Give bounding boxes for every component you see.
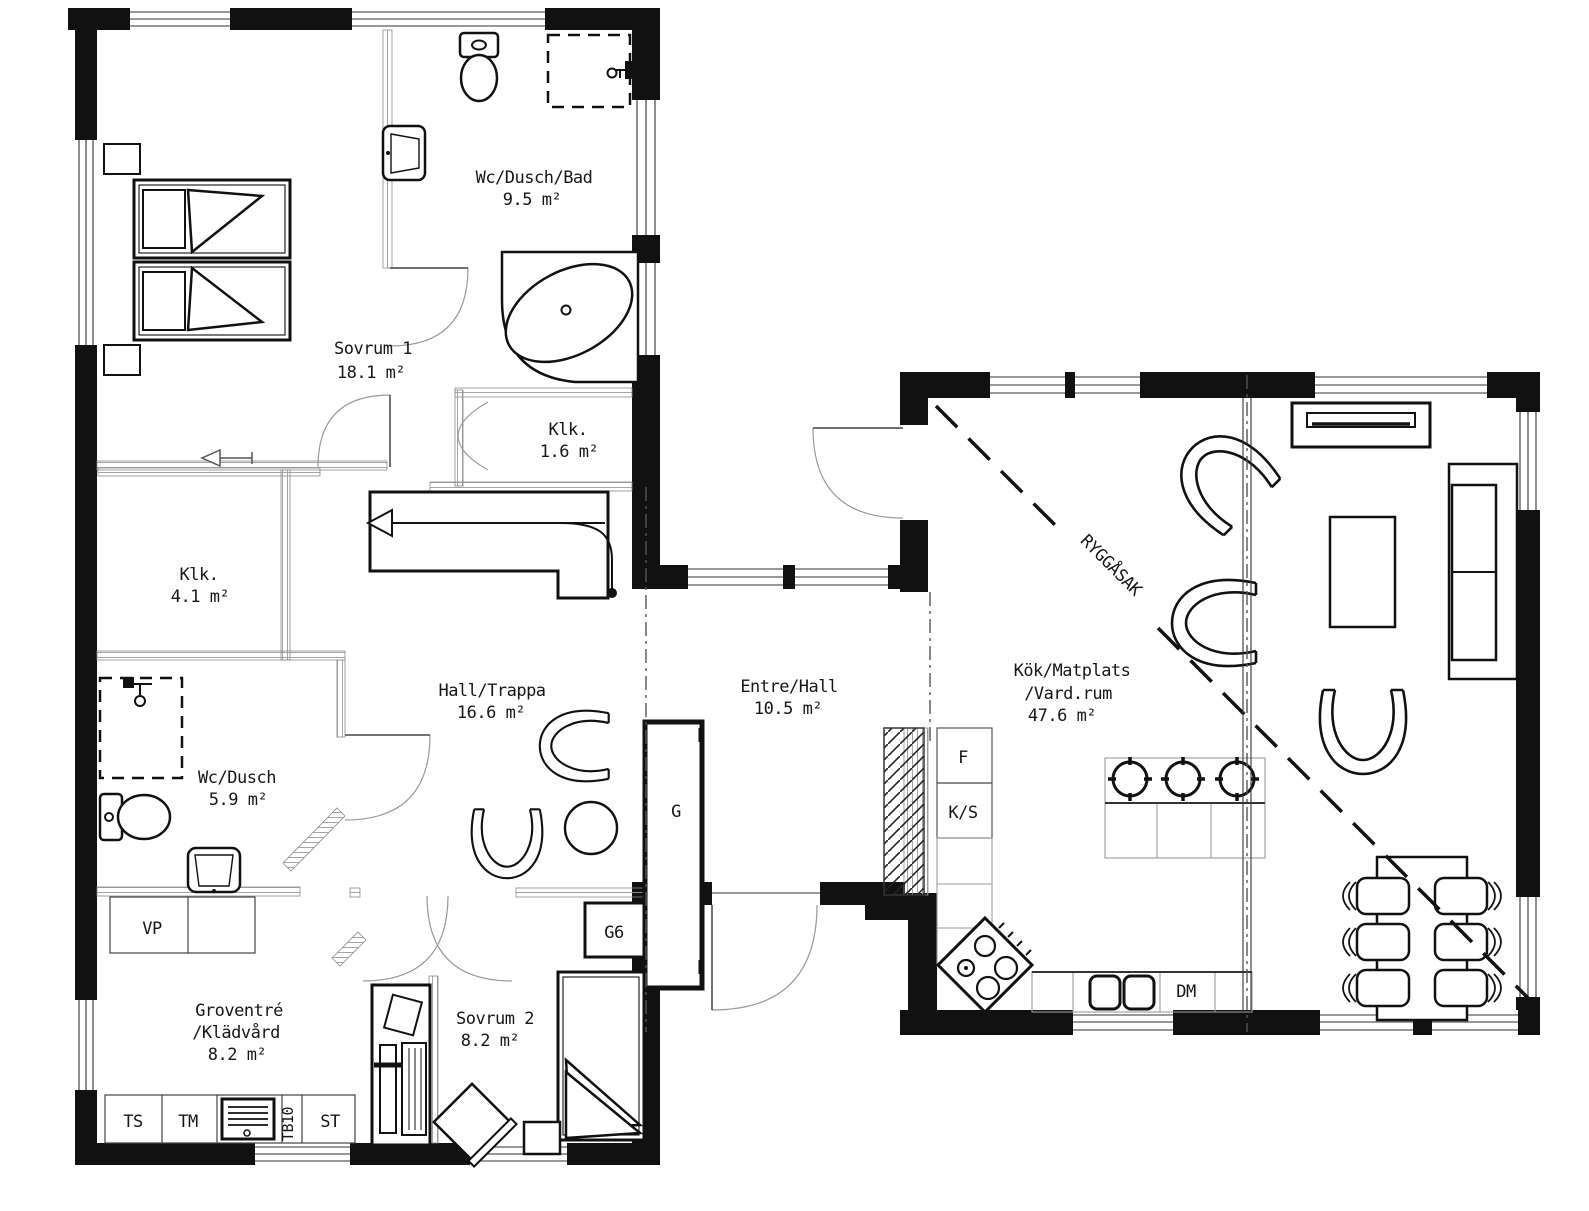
appliance-label-st: ST (320, 1112, 340, 1132)
pillow (143, 272, 185, 330)
room-label: /Klädvård (192, 1022, 280, 1043)
room-label: Wc/Dusch (198, 768, 276, 788)
appliance-label-ks: K/S (948, 803, 977, 823)
room-label: Sovrum 2 (456, 1009, 534, 1029)
appliance-label-tm: TM (178, 1112, 198, 1132)
window (1315, 372, 1487, 398)
coffee-table (1330, 517, 1395, 627)
armchair (1162, 417, 1282, 537)
dining-chair (1435, 924, 1501, 960)
dining-chair (1435, 970, 1501, 1006)
stairs (370, 492, 608, 598)
room-area: 9.5 m² (503, 190, 561, 210)
wc-dusch-fixtures (100, 678, 255, 953)
room-label: Klk. (180, 565, 219, 585)
window (688, 565, 783, 589)
window (352, 8, 545, 30)
room-label: Entre/Hall (740, 677, 837, 697)
entre-fixtures (645, 722, 924, 988)
appliance-label-f: F (958, 748, 968, 768)
window (1075, 372, 1140, 398)
room-area: 5.9 m² (209, 790, 267, 810)
dining-chair (1435, 878, 1501, 914)
appliance-label-ts: TS (123, 1112, 143, 1132)
floor-plan-svg: Wc/Dusch/Bad 9.5 m² Sovrum 1 18.1 m² Klk… (0, 0, 1589, 1211)
appliance-label-vp: VP (142, 919, 162, 939)
dining-chair (1343, 924, 1409, 960)
coat-rack (884, 728, 924, 895)
window (130, 8, 230, 30)
window (1073, 1010, 1173, 1035)
window (632, 100, 660, 235)
room-label: Hall/Trappa (438, 681, 545, 701)
dining-chair (1343, 970, 1409, 1006)
hall-stool (565, 802, 617, 854)
armchair (1320, 690, 1406, 774)
shower-mixer (124, 678, 152, 706)
window (990, 372, 1065, 398)
toilet (460, 33, 498, 101)
room-area: 18.1 m² (337, 363, 405, 383)
corner-bathtub (489, 244, 649, 382)
ridge-label: RYGGÅSAK (1076, 529, 1148, 601)
room-label: Sovrum 1 (334, 339, 412, 359)
pillow (143, 190, 185, 248)
window (1516, 412, 1540, 510)
dining-set (1343, 857, 1501, 1020)
kitchen-fixtures (937, 728, 1265, 1012)
washbasin (383, 126, 425, 180)
ridge-line (936, 406, 1056, 526)
washbasin (188, 848, 240, 893)
hall-chair (472, 809, 543, 878)
door-threshold (712, 882, 820, 905)
dryer (222, 1099, 274, 1139)
appliance-label-tb10: TB10 (279, 1106, 297, 1141)
window (1516, 897, 1540, 997)
nightstand (104, 345, 140, 375)
sovrum1-furniture (104, 144, 290, 466)
room-area: 4.1 m² (171, 587, 229, 607)
vp-cabinet (110, 897, 255, 953)
bar-stool (1108, 757, 1152, 801)
room-label: Wc/Dusch/Bad (476, 168, 593, 188)
nightstand (104, 144, 140, 174)
room-label: Kök/Matplats (1014, 661, 1131, 681)
shower-mixer (608, 62, 635, 78)
window (75, 140, 97, 345)
wardrobe-g (645, 722, 702, 988)
bar-stools (1108, 757, 1259, 801)
room-label: Klk. (549, 420, 588, 440)
room-label: Groventré (195, 1001, 283, 1021)
appliance-label-dm: DM (1176, 982, 1196, 1002)
bar-stool (1215, 757, 1259, 801)
storage-label-g: G (671, 802, 681, 822)
cleaning-cabinet (372, 985, 430, 1145)
toilet (100, 794, 170, 840)
tv-bench (1292, 403, 1430, 447)
room-area: 8.2 m² (461, 1031, 519, 1051)
storage-label-g6: G6 (604, 923, 624, 943)
floor-plan: Wc/Dusch/Bad 9.5 m² Sovrum 1 18.1 m² Klk… (0, 0, 1589, 1211)
hall-armchair (540, 711, 609, 782)
living-room-furniture (1162, 403, 1517, 1020)
room-label: /Vard.rum (1024, 684, 1112, 704)
room-area: 10.5 m² (754, 699, 822, 719)
room-area: 16.6 m² (457, 703, 525, 723)
nightstand (524, 1122, 560, 1154)
sink (1090, 976, 1154, 1009)
room-area: 47.6 m² (1028, 706, 1096, 726)
windows (75, 8, 1540, 1165)
sofa (1449, 464, 1517, 679)
room-area: 1.6 m² (540, 442, 598, 462)
stove (938, 918, 1032, 1012)
window (75, 1000, 97, 1090)
bar-stool (1161, 757, 1205, 801)
window (255, 1143, 350, 1165)
room-area: 8.2 m² (208, 1045, 266, 1065)
window (795, 565, 888, 589)
dining-chair (1343, 878, 1409, 914)
